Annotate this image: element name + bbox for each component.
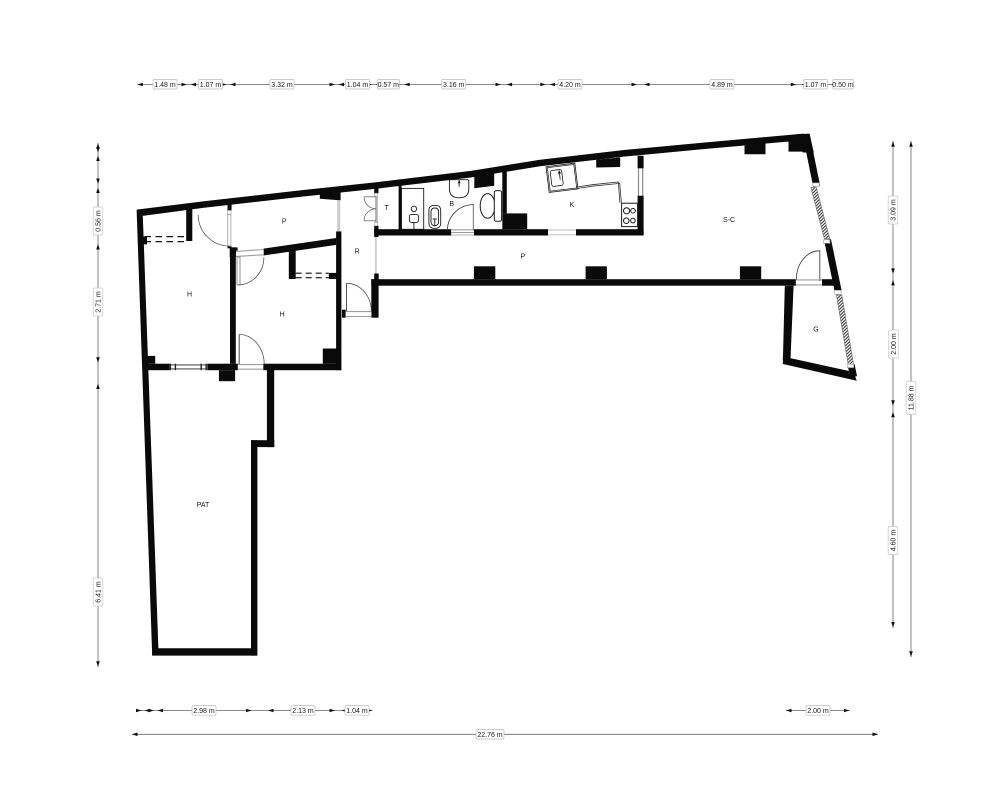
svg-text:2.71 m: 2.71 m	[95, 291, 102, 313]
svg-text:2.13 m: 2.13 m	[292, 708, 314, 715]
svg-text:22.76 m: 22.76 m	[477, 732, 502, 739]
svg-text:P: P	[282, 219, 287, 226]
svg-text:3.32 m: 3.32 m	[271, 82, 293, 89]
svg-text:R: R	[355, 248, 360, 255]
svg-text:2.00 m: 2.00 m	[807, 708, 829, 715]
svg-text:1.04 m: 1.04 m	[347, 82, 369, 89]
svg-text:2.00 m: 2.00 m	[891, 333, 898, 355]
svg-text:4.20 m: 4.20 m	[559, 82, 581, 89]
svg-text:3.16 m: 3.16 m	[443, 82, 465, 89]
svg-text:1.48 m: 1.48 m	[154, 82, 176, 89]
svg-text:1.07 m: 1.07 m	[200, 82, 222, 89]
svg-text:H: H	[187, 292, 192, 299]
svg-text:S-C: S-C	[723, 217, 735, 224]
svg-text:H: H	[280, 311, 285, 318]
svg-text:0.56 m: 0.56 m	[95, 210, 102, 232]
svg-text:PAT: PAT	[197, 502, 210, 509]
svg-text:P: P	[520, 254, 525, 261]
svg-text:0.50 m: 0.50 m	[832, 82, 854, 89]
svg-text:4.89 m: 4.89 m	[711, 82, 733, 89]
svg-text:B: B	[449, 201, 454, 208]
svg-text:11.88 m: 11.88 m	[908, 385, 915, 410]
svg-text:6.41 m: 6.41 m	[95, 581, 102, 603]
svg-text:2.98 m: 2.98 m	[193, 708, 215, 715]
svg-text:1.07 m: 1.07 m	[805, 82, 827, 89]
svg-text:T: T	[385, 205, 390, 212]
svg-text:1.04 m: 1.04 m	[346, 708, 368, 715]
svg-text:3.09 m: 3.09 m	[890, 199, 897, 221]
svg-text:K: K	[570, 202, 575, 209]
svg-text:G: G	[813, 326, 818, 333]
svg-text:4.60 m: 4.60 m	[890, 530, 897, 552]
svg-text:0.57 m: 0.57 m	[378, 82, 400, 89]
